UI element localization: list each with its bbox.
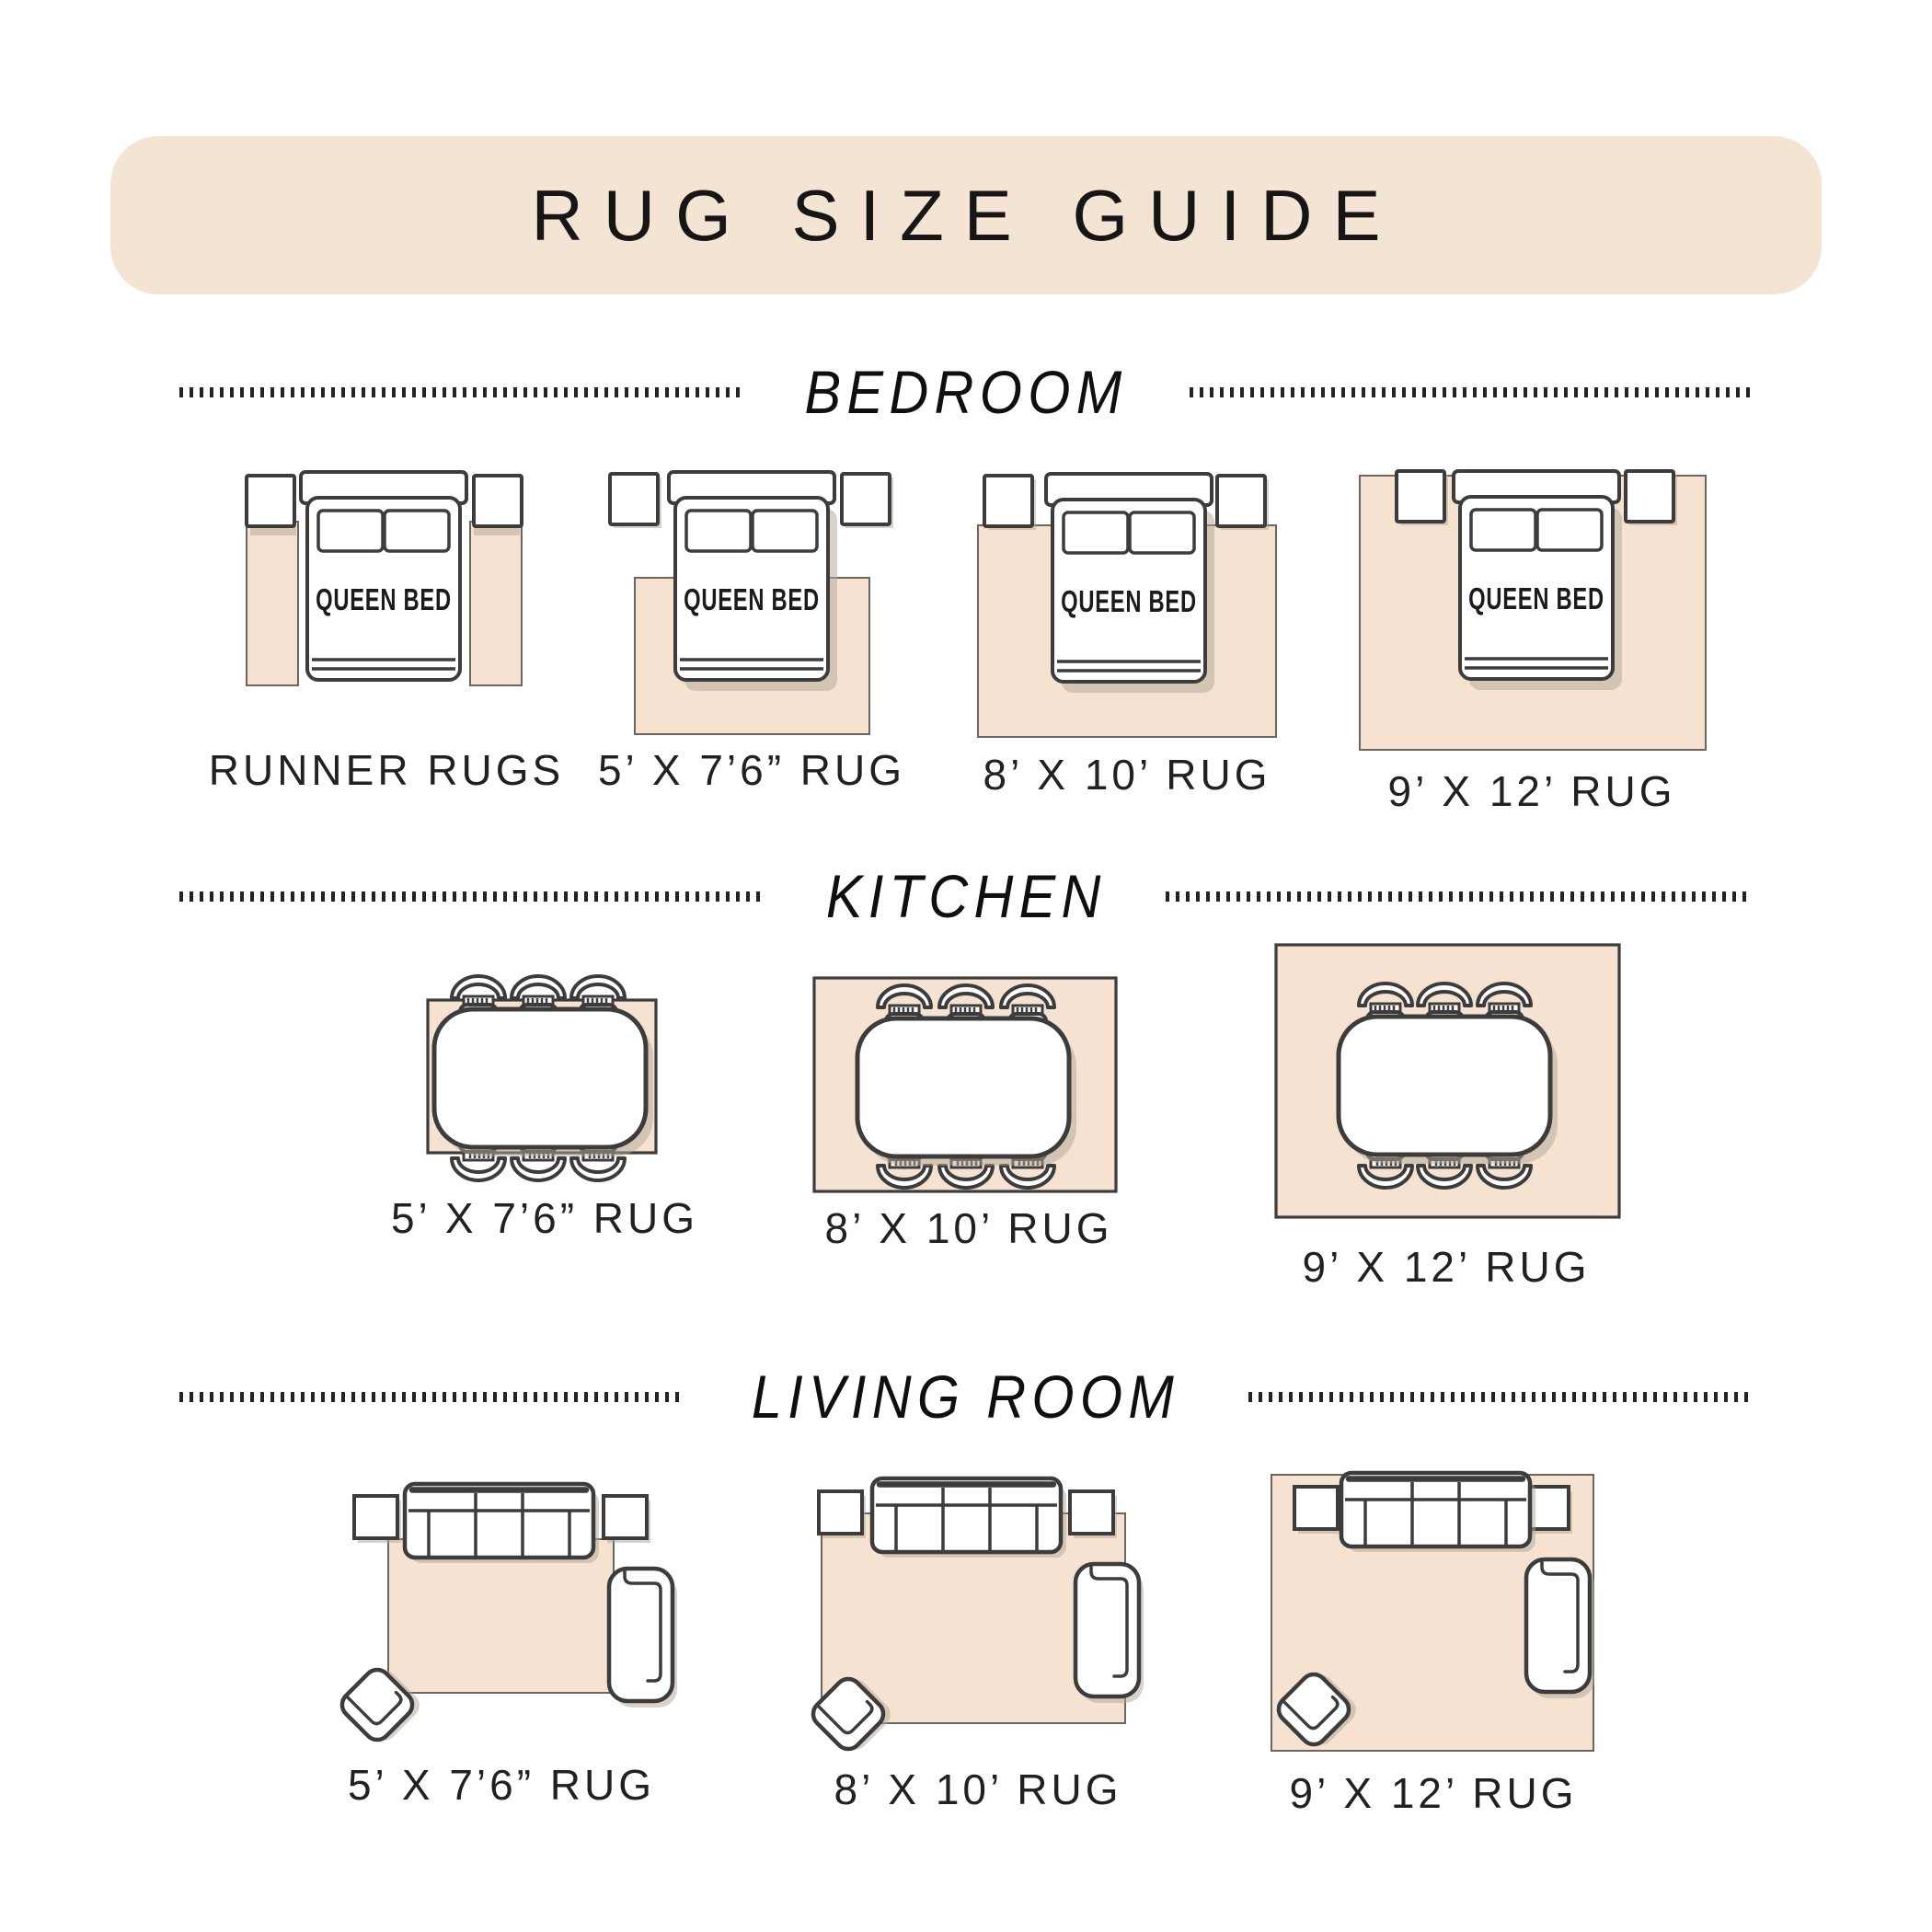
dotted-divider-right [1166, 891, 1753, 902]
side-table-icon [604, 1496, 650, 1543]
bed-icon [1046, 474, 1212, 682]
chaise-icon [609, 1569, 677, 1708]
section-title-living-room: LIVING ROOM [752, 1362, 1179, 1432]
sofa-icon [872, 1478, 1066, 1558]
sofa-icon [1341, 1473, 1535, 1552]
bed-icon [1454, 471, 1619, 679]
kitchen-figure-8x10 [810, 952, 1122, 1201]
nightstand-icon [610, 474, 658, 524]
dotted-divider-right [1190, 387, 1753, 397]
dotted-divider-left [179, 891, 766, 902]
nightstand-icon [474, 476, 522, 526]
page-title: RUG SIZE GUIDE [531, 174, 1400, 258]
section-heading-kitchen: KITCHEN [179, 863, 1753, 929]
section-heading-living-room: LIVING ROOM [179, 1363, 1753, 1430]
rug-size-label: 9’ X 12’ RUG [1387, 766, 1675, 816]
rug-size-label: 5’ X 7’6” RUG [391, 1193, 698, 1243]
rug-size-label: 9’ X 12’ RUG [1289, 1768, 1577, 1818]
rug-size-label: 5’ X 7’6” RUG [598, 745, 905, 795]
section-title-kitchen: KITCHEN [826, 861, 1107, 931]
bedroom-figure-runner [239, 465, 529, 690]
rug-size-label: 8’ X 10’ RUG [834, 1765, 1121, 1814]
kitchen-table-icon [857, 1018, 1076, 1166]
nightstand-icon [1626, 471, 1673, 522]
side-table-icon [819, 1491, 866, 1538]
section-heading-bedroom: BEDROOM [179, 359, 1753, 425]
rug-size-guide-page: QUEEN BED [0, 0, 1932, 1932]
kitchen-table-icon [434, 1009, 653, 1156]
dotted-divider-left [179, 387, 742, 397]
nightstand-icon [1217, 476, 1265, 526]
dotted-divider-right [1248, 1392, 1753, 1402]
kitchen-figure-9x12 [1274, 938, 1624, 1224]
livingroom-figure-9x12 [1265, 1463, 1601, 1771]
runner-rug-left [247, 522, 298, 685]
nightstand-icon [247, 476, 294, 526]
rug-size-label: RUNNER RUGS [209, 745, 564, 795]
runner-rug-right [470, 522, 522, 685]
side-table-icon [1070, 1491, 1117, 1538]
chaise-icon [1075, 1564, 1144, 1703]
dotted-divider-left [179, 1392, 684, 1402]
side-table-icon [354, 1496, 401, 1543]
rug-size-label: 9’ X 12’ RUG [1302, 1242, 1590, 1292]
nightstand-icon [1397, 471, 1444, 522]
bedroom-figure-8x10 [975, 465, 1279, 741]
sofa-icon [405, 1484, 599, 1563]
side-table-icon [1294, 1487, 1341, 1534]
kitchen-figure-5x76 [419, 943, 667, 1191]
nightstand-icon [842, 474, 890, 524]
bed-icon [669, 472, 834, 680]
chaise-icon [1526, 1559, 1594, 1698]
livingroom-figure-5x76 [331, 1467, 681, 1771]
title-banner: RUG SIZE GUIDE [110, 136, 1822, 294]
nightstand-icon [984, 476, 1032, 526]
bed-icon [301, 472, 466, 680]
bedroom-figure-9x12 [1357, 460, 1711, 754]
bedroom-figure-5x76 [607, 465, 892, 741]
livingroom-figure-8x10 [800, 1467, 1150, 1766]
rug-size-label: 8’ X 10’ RUG [983, 750, 1271, 799]
kitchen-table-icon [1339, 1017, 1558, 1164]
section-title-bedroom: BEDROOM [804, 357, 1127, 427]
rug-size-label: 5’ X 7’6” RUG [348, 1760, 655, 1810]
rug-size-label: 8’ X 10’ RUG [824, 1203, 1112, 1253]
